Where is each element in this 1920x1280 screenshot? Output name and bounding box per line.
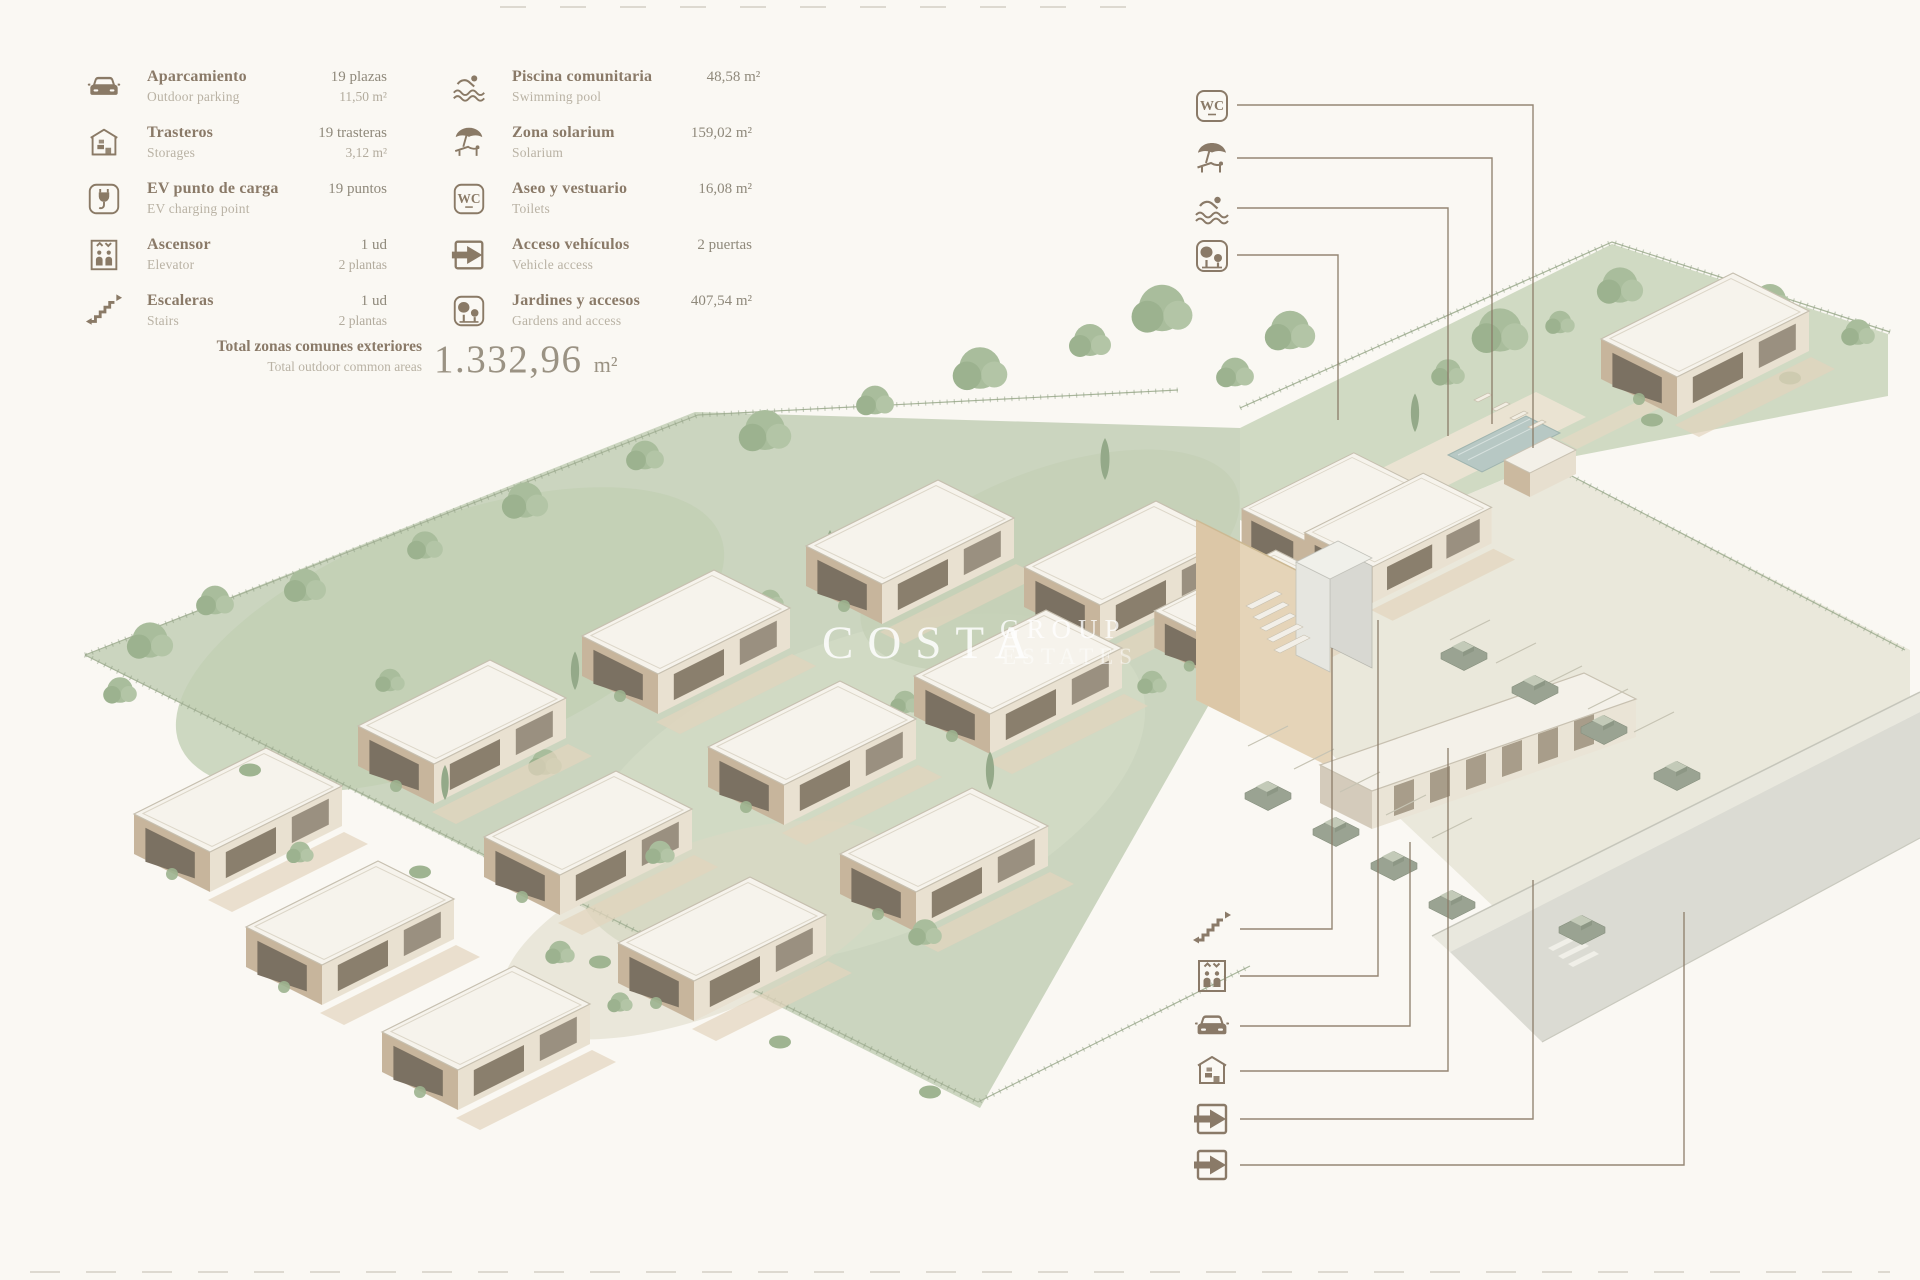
legend-label-es: Aparcamiento: [147, 68, 279, 86]
legend-row-storage: TrasterosStorages19 trasteras3,12 m²: [85, 124, 387, 166]
legend-row-solarium: Zona solariumSolarium159,02 m²: [450, 124, 752, 166]
wc-icon: WC: [450, 180, 490, 220]
legend-label-en: EV charging point: [147, 201, 279, 217]
legend-values: 1 ud2 plantas: [279, 292, 387, 329]
legend-values: 1 ud2 plantas: [279, 236, 387, 273]
vehicle-access-icon: [450, 236, 490, 276]
legend-value-secondary: 2 plantas: [279, 257, 387, 273]
storage-icon: [85, 124, 125, 164]
solarium-icon: [450, 124, 490, 164]
legend-row-car: AparcamientoOutdoor parking19 plazas11,5…: [85, 68, 387, 110]
total-label-es: Total zonas comunes exteriores: [85, 338, 422, 356]
legend-label-es: Ascensor: [147, 236, 279, 254]
legend-label-en: Storages: [147, 145, 279, 161]
legend-value-primary: 1 ud: [279, 292, 387, 310]
legend-value-secondary: 11,50 m²: [279, 89, 387, 105]
legend-labels: EscalerasStairs: [125, 292, 279, 329]
legend-value-primary: 2 puertas: [644, 236, 752, 254]
legend-values: 407,54 m²: [644, 292, 752, 313]
legend-value-primary: 407,54 m²: [644, 292, 752, 310]
masterplan-page: COSTA GROUP ESTATES AparcamientoOutdoor …: [0, 0, 1920, 1280]
garden-icon: [1192, 236, 1232, 276]
total-area-unit: m²: [594, 352, 618, 377]
legend-row-ev-charger: EV punto de cargaEV charging point19 pun…: [85, 180, 387, 222]
brand-watermark: COSTA GROUP ESTATES: [822, 614, 1138, 669]
legend-value-primary: 16,08 m²: [644, 180, 752, 198]
legend-values: 19 puntos: [279, 180, 387, 201]
legend-label-en: Toilets: [512, 201, 644, 217]
svg-text:WC: WC: [458, 191, 481, 206]
stairs-icon: [85, 292, 125, 332]
legend-labels: Zona solariumSolarium: [490, 124, 644, 161]
watermark-tertiary: ESTATES: [1002, 644, 1138, 669]
legend-labels: Jardines y accesosGardens and access: [490, 292, 644, 329]
legend-labels: Piscina comunitariaSwimming pool: [490, 68, 652, 105]
legend-label-es: Escaleras: [147, 292, 279, 310]
legend-labels: Acceso vehículosVehicle access: [490, 236, 644, 273]
legend-label-es: Piscina comunitaria: [512, 68, 652, 86]
stairs-icon: [1192, 909, 1232, 949]
legend-labels: AparcamientoOutdoor parking: [125, 68, 279, 105]
total-label-en: Total outdoor common areas: [85, 359, 422, 375]
legend-label-en: Solarium: [512, 145, 644, 161]
car-icon: [85, 68, 125, 108]
watermark-secondary: GROUP: [1000, 614, 1127, 644]
legend-label-en: Stairs: [147, 313, 279, 329]
legend-labels: TrasterosStorages: [125, 124, 279, 161]
legend-row-wc: WCAseo y vestuarioToilets16,08 m²: [450, 180, 752, 222]
vehicle-access-icon: [1192, 1145, 1232, 1185]
elevator-icon: [85, 236, 125, 276]
legend-value-primary: 1 ud: [279, 236, 387, 254]
legend-values: 159,02 m²: [644, 124, 752, 145]
garden-icon: [450, 292, 490, 332]
total-area-value: 1.332,96 m²: [434, 340, 617, 379]
storage-icon: [1192, 1051, 1232, 1091]
legend-label-es: Aseo y vestuario: [512, 180, 644, 198]
legend-value-secondary: 2 plantas: [279, 313, 387, 329]
legend-labels: AscensorElevator: [125, 236, 279, 273]
legend-value-primary: 159,02 m²: [644, 124, 752, 142]
legend-label-es: Acceso vehículos: [512, 236, 644, 254]
legend-values: 19 plazas11,50 m²: [279, 68, 387, 105]
legend-row-garden: Jardines y accesosGardens and access407,…: [450, 292, 752, 334]
legend-values: 2 puertas: [644, 236, 752, 257]
legend-row-stairs: EscalerasStairs1 ud2 plantas: [85, 292, 387, 334]
wc-icon: WC: [1192, 86, 1232, 126]
legend-labels: Aseo y vestuarioToilets: [490, 180, 644, 217]
legend-value-primary: 19 trasteras: [279, 124, 387, 142]
legend-column-left: AparcamientoOutdoor parking19 plazas11,5…: [85, 68, 387, 348]
legend-value-primary: 19 plazas: [279, 68, 387, 86]
legend-label-en: Swimming pool: [512, 89, 652, 105]
vehicle-access-icon: [1192, 1099, 1232, 1139]
legend-label-en: Elevator: [147, 257, 279, 273]
legend-label-es: Trasteros: [147, 124, 279, 142]
legend-value-primary: 19 puntos: [279, 180, 387, 198]
legend-total: Total zonas comunes exteriores Total out…: [85, 338, 617, 379]
legend-label-en: Outdoor parking: [147, 89, 279, 105]
pool-icon: [1192, 189, 1232, 229]
pool-icon: [450, 68, 490, 108]
car-icon: [1192, 1006, 1232, 1046]
legend-values: 16,08 m²: [644, 180, 752, 201]
legend-row-vehicle-access: Acceso vehículosVehicle access2 puertas: [450, 236, 752, 278]
legend-value-primary: 48,58 m²: [652, 68, 760, 86]
solarium-icon: [1192, 139, 1232, 179]
legend-row-elevator: AscensorElevator1 ud2 plantas: [85, 236, 387, 278]
elevator-icon: [1192, 956, 1232, 996]
svg-text:WC: WC: [1200, 99, 1224, 114]
legend-label-es: Jardines y accesos: [512, 292, 644, 310]
legend-label-es: Zona solarium: [512, 124, 644, 142]
legend-label-es: EV punto de carga: [147, 180, 279, 198]
ev-charger-icon: [85, 180, 125, 220]
legend-labels: EV punto de cargaEV charging point: [125, 180, 279, 217]
legend-values: 19 trasteras3,12 m²: [279, 124, 387, 161]
legend-label-en: Vehicle access: [512, 257, 644, 273]
legend-column-right: Piscina comunitariaSwimming pool48,58 m²…: [450, 68, 752, 348]
legend-values: 48,58 m²: [652, 68, 760, 89]
legend-value-secondary: 3,12 m²: [279, 145, 387, 161]
legend-row-pool: Piscina comunitariaSwimming pool48,58 m²: [450, 68, 752, 110]
legend-label-en: Gardens and access: [512, 313, 644, 329]
